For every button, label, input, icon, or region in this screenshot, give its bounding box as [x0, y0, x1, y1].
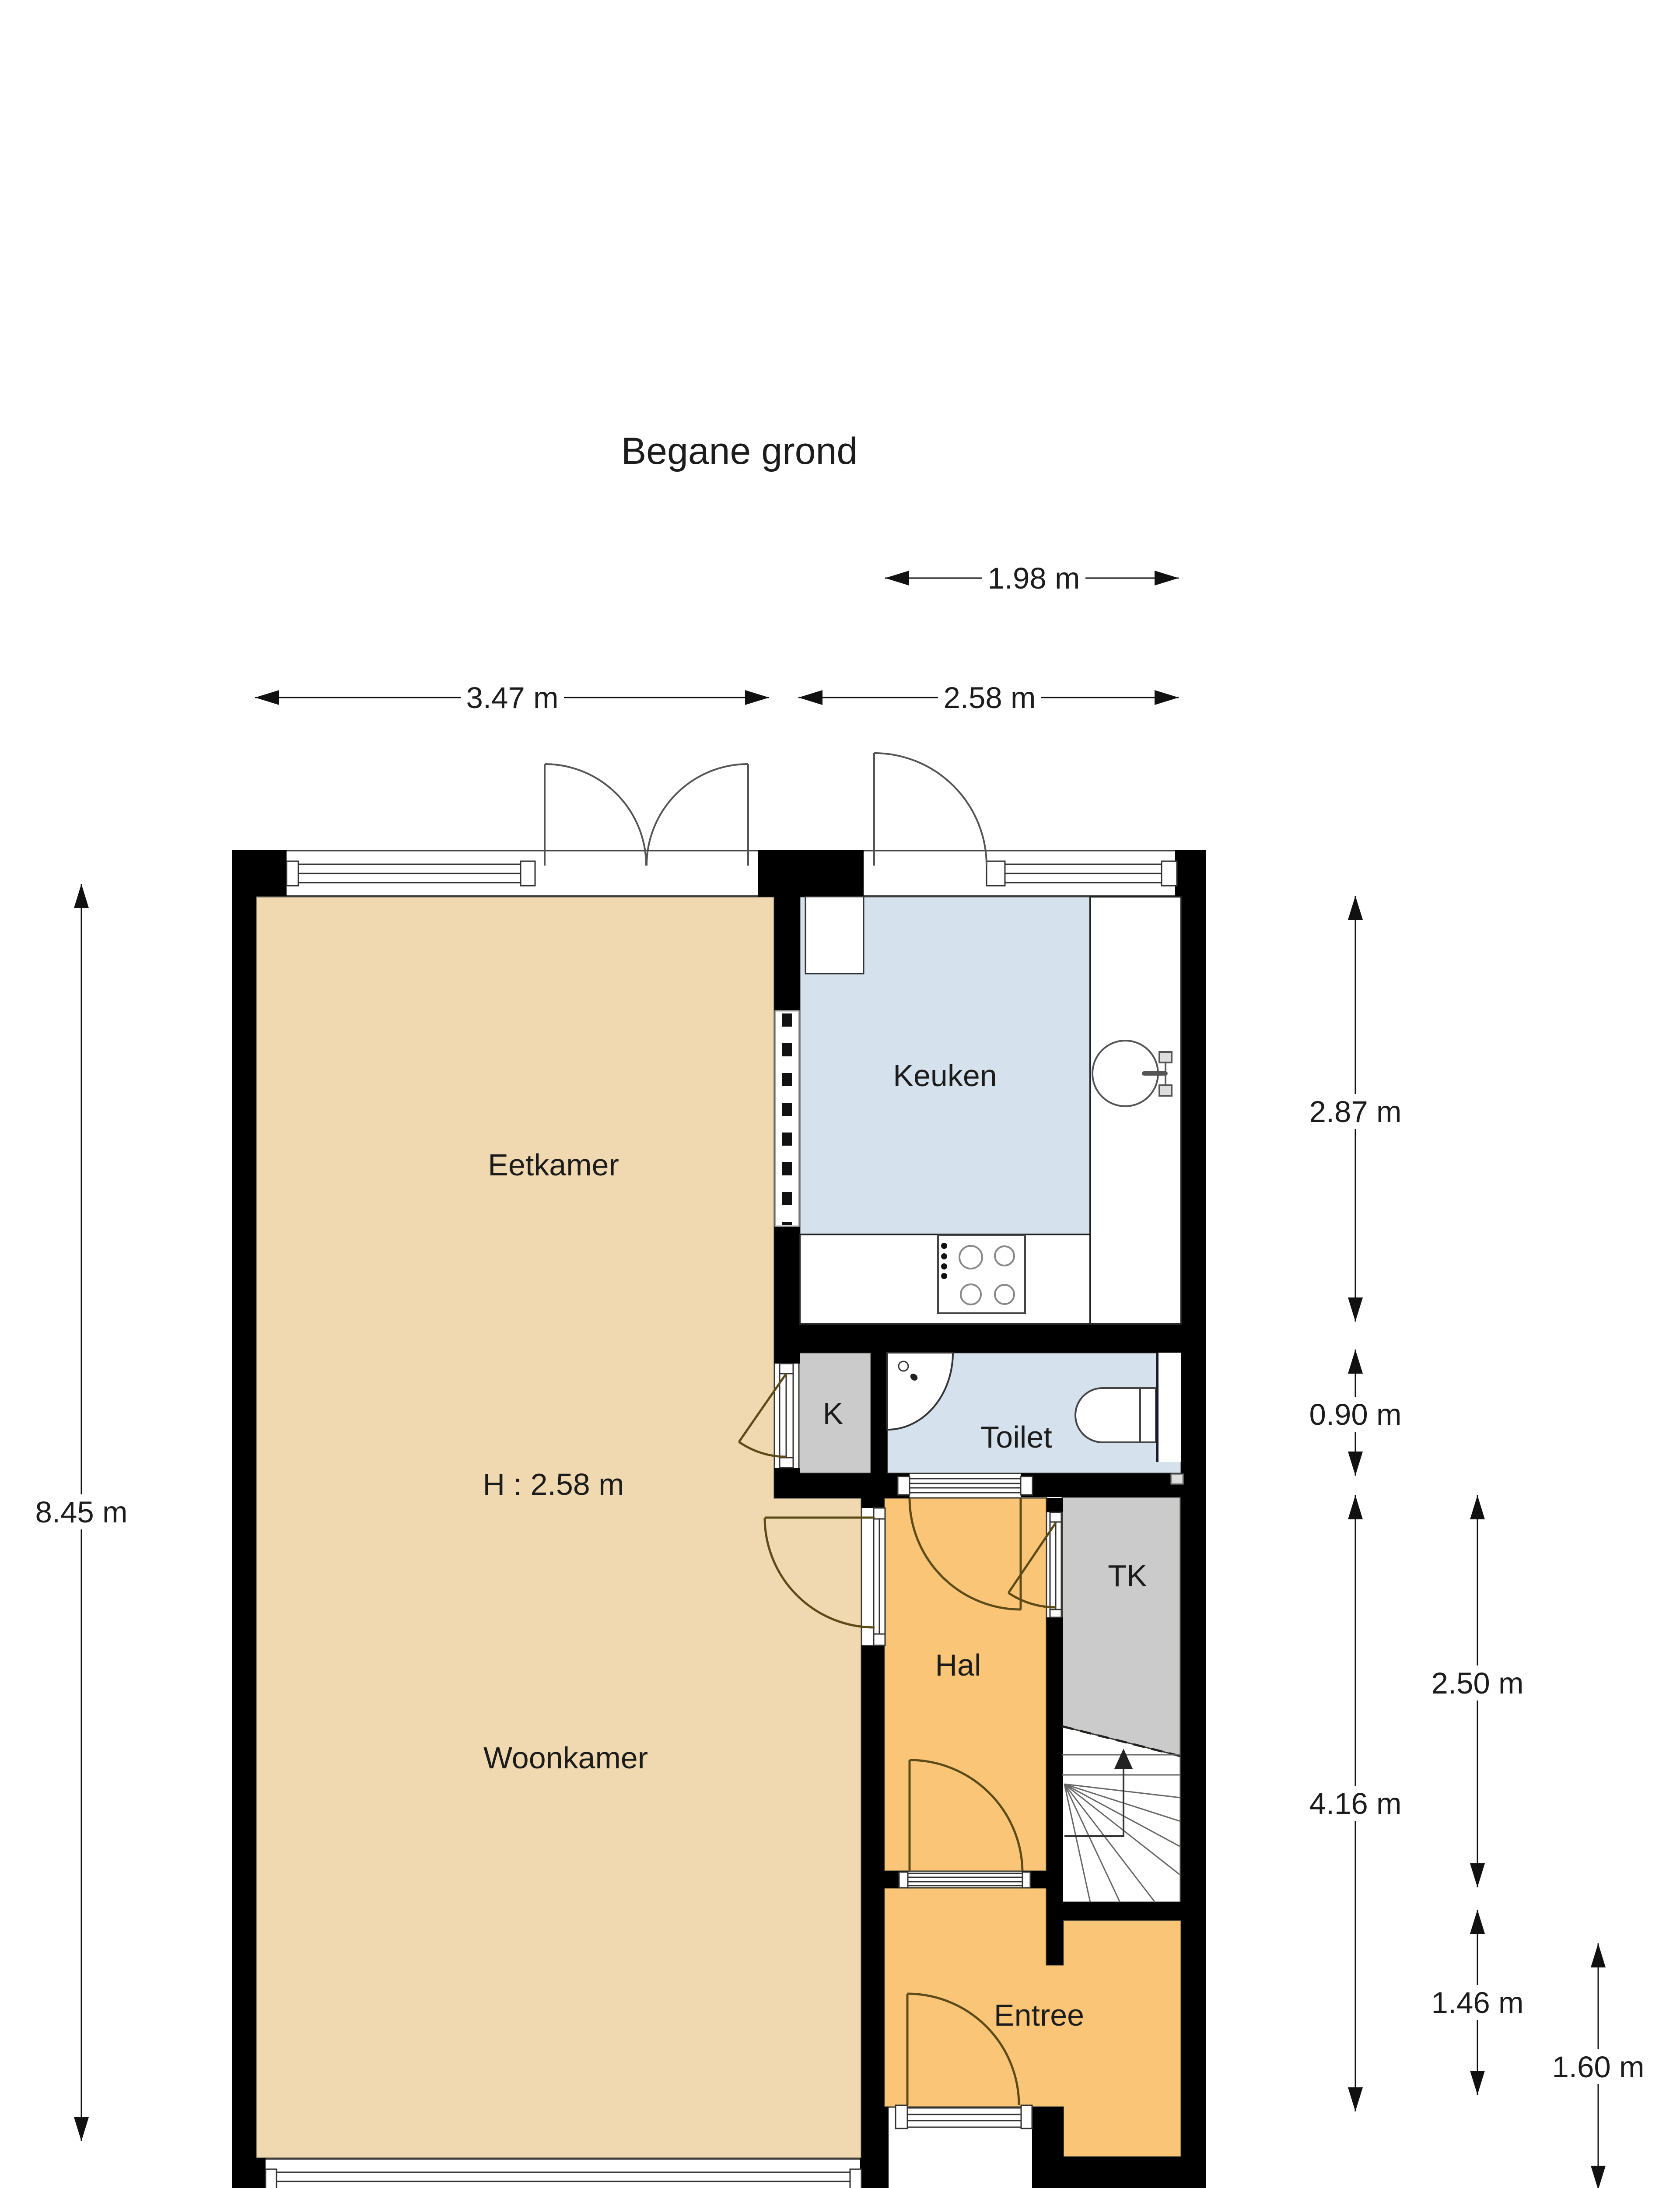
- svg-text:8.45 m: 8.45 m: [35, 1495, 128, 1529]
- svg-text:0.90 m: 0.90 m: [1309, 1398, 1402, 1431]
- svg-text:Eetkamer: Eetkamer: [488, 1148, 619, 1182]
- svg-text:1.98 m: 1.98 m: [988, 561, 1080, 595]
- svg-text:Woonkamer: Woonkamer: [483, 1741, 648, 1775]
- svg-text:2.58 m: 2.58 m: [944, 681, 1036, 715]
- svg-text:2.50 m: 2.50 m: [1431, 1666, 1524, 1700]
- svg-text:2.87 m: 2.87 m: [1309, 1095, 1402, 1129]
- svg-text:1.60 m: 1.60 m: [1552, 2050, 1645, 2084]
- svg-text:4.16 m: 4.16 m: [1309, 1787, 1402, 1820]
- svg-text:3.47 m: 3.47 m: [466, 681, 559, 715]
- svg-text:Toilet: Toilet: [980, 1420, 1052, 1454]
- svg-text:Keuken: Keuken: [893, 1059, 997, 1093]
- svg-text:K: K: [823, 1396, 843, 1431]
- svg-text:TK: TK: [1108, 1559, 1147, 1593]
- svg-text:Begane grond: Begane grond: [621, 430, 857, 472]
- svg-text:Hal: Hal: [935, 1648, 981, 1682]
- svg-text:H : 2.58 m: H : 2.58 m: [483, 1467, 624, 1501]
- svg-text:Entree: Entree: [994, 1998, 1084, 2032]
- svg-text:1.46 m: 1.46 m: [1431, 1986, 1524, 2020]
